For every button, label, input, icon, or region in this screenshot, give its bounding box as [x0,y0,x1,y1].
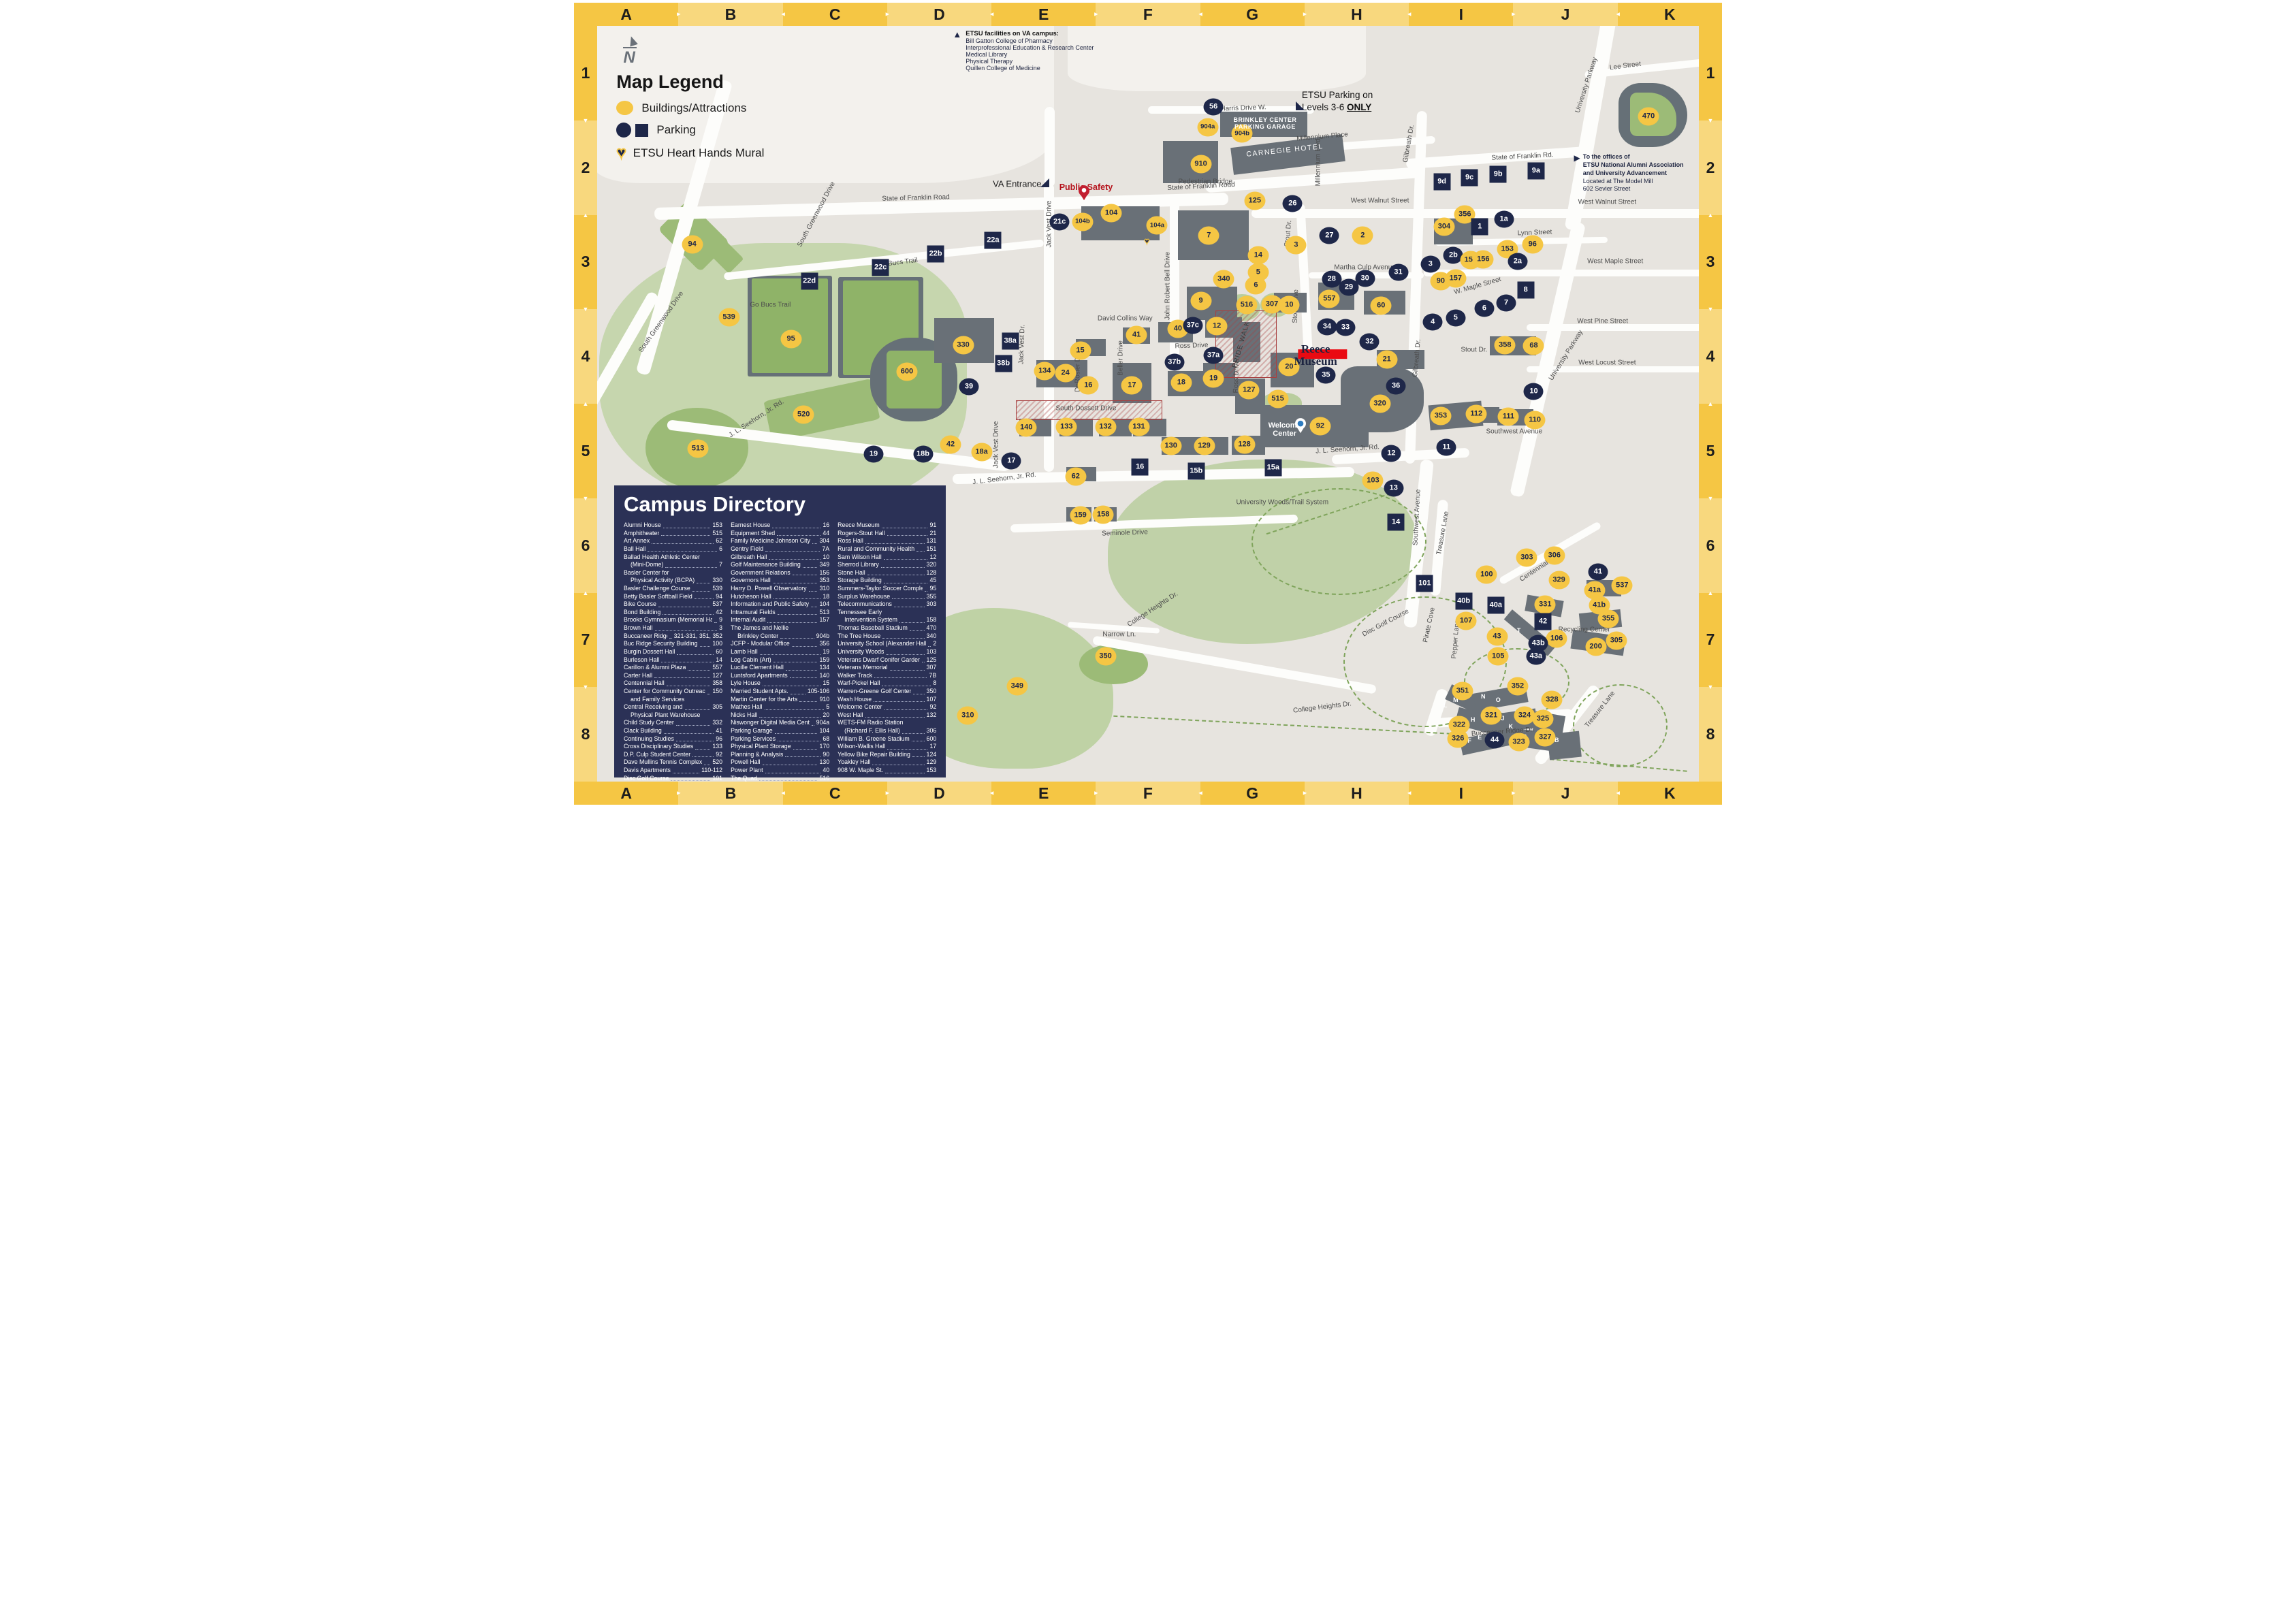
directory-entry-number: 134 [819,664,829,672]
dotted-leader [695,598,714,599]
parking-marker-37c: 37c [1183,317,1202,334]
grid-label-1: 1▼ [574,26,597,121]
directory-entry: Lyle House15 [731,679,829,688]
alumni-note-bold: ETSU National Alumni Association [1583,161,1684,170]
directory-entry: Telecommunications303 [838,600,936,609]
directory-entry-name: Physical Plant Storage [731,743,791,751]
directory-entry: Ross Hall131 [838,537,936,545]
directory-entry-number: 310 [819,585,829,593]
parking-marker-22c: 22c [872,259,889,276]
directory-entry-number: 520 [712,758,722,767]
directory-entry-name: Internal Audit [731,616,765,624]
legend-item-parking: Parking [616,123,764,138]
grid-arrow-icon: ▼ [583,118,589,124]
grid-label-2: 2▲ [1699,121,1722,215]
legend-label: Parking [656,123,696,137]
dotted-leader [910,630,925,631]
alumni-note-bold: and University Advancement [1583,170,1684,178]
directory-entry: Stone Hall128 [838,569,936,577]
directory-entry-name: Reece Museum [838,522,880,530]
directory-entry-number: 15 [823,679,829,688]
dotted-leader [695,749,710,750]
building-marker-103: 103 [1362,472,1384,490]
directory-entry: Yellow Bike Repair Building124 [838,751,936,759]
directory-entry: Physical Plant Storage170 [731,743,829,751]
building-marker-icon [616,101,633,115]
directory-entry-number: 124 [927,751,937,759]
dotted-leader [707,694,710,694]
va-facilities-note: ▲ ETSU facilities on VA campus: Bill Gat… [953,30,1094,71]
legend-title: Map Legend [616,71,764,93]
directory-entry-number: 153 [927,767,937,775]
directory-entry-name: Rogers-Stout Hall [838,530,884,538]
building-marker-325: 325 [1532,709,1553,728]
building-marker-516: 516 [1236,296,1257,315]
directory-entry-name: 908 W. Maple St. [838,767,883,775]
building-marker-158: 158 [1093,505,1114,524]
directory-entry: University School (Alexander Hall)2 [838,640,936,648]
directory-entry-number: 150 [712,688,722,696]
building-marker-350: 350 [1095,647,1116,666]
dotted-leader [916,551,924,552]
directory-entry: The James and Nellie [731,624,829,632]
directory-entry-number: 131 [927,537,937,545]
directory-entry: Buccaneer Ridge321-331, 351, 352 [624,632,722,641]
dotted-leader [886,654,924,655]
building-marker-7: 7 [1198,226,1219,244]
building-marker-329: 329 [1548,571,1569,590]
grid-label-8: 8 [1699,687,1722,782]
parking-marker-15a: 15a [1264,460,1281,477]
building-marker-157: 157 [1445,270,1466,288]
building-letter: O [1496,696,1501,703]
building-marker-24: 24 [1055,364,1076,383]
directory-entry: Surplus Warehouse355 [838,593,936,601]
directory-entry: Earnest House16 [731,522,829,530]
directory-entry-number: 92 [716,751,722,759]
directory-entry-number: 170 [819,743,829,751]
building-marker-305: 305 [1606,631,1627,649]
dotted-leader [812,543,818,544]
parking-marker-35: 35 [1316,366,1336,383]
dotted-leader [775,733,818,734]
directory-entry: Luntsford Apartments140 [731,672,829,680]
directory-entry: Niswonger Digital Media Center904a [731,719,829,727]
directory-entry-number: 153 [712,522,722,530]
directory-entry-number: 45 [929,577,936,585]
building-marker-328: 328 [1542,690,1563,709]
directory-entry-number: 2 [933,640,936,648]
directory-entry-name: Storage Building [838,577,882,585]
directory-entry-name: Physical Activity (BCPA) [631,577,695,585]
building-marker-19: 19 [1203,370,1224,388]
building-marker-200: 200 [1585,637,1606,656]
directory-entry-number: 103 [927,648,937,656]
directory-entry-number: 356 [819,640,829,648]
building-marker-125: 125 [1244,191,1265,210]
grid-label-7: 7▼ [1699,593,1722,688]
va-entrance-label: VA Entrance [993,179,1041,189]
building-marker-324: 324 [1514,707,1535,725]
grid-label-C: C► [783,782,887,805]
directory-entry-name: D.P. Culp Student Center [624,751,690,759]
directory-entry-name: William B. Greene Stadium [838,735,910,743]
building-marker-3: 3 [1286,236,1307,254]
directory-entry-name: Nicks Hall [731,711,757,720]
grid-arrow-icon: ◄ [780,790,786,797]
parking-marker-14: 14 [1388,514,1405,531]
compass-north: N [623,36,637,67]
directory-entry-number: 16 [823,522,829,530]
grid-arrow-icon: ◄ [1406,790,1412,797]
directory-entry: Gentry Field7A [731,545,829,554]
directory-entry-name: Wash House [838,696,872,704]
dotted-leader [925,591,927,592]
street-label: Narrow Ln. [1102,631,1136,639]
map-legend: Map Legend Buildings/Attractions Parking… [616,71,764,169]
directory-entry-name: Log Cabin (Art) [731,656,771,664]
dotted-leader [792,646,818,647]
grid-arrow-icon: ► [1302,790,1308,797]
directory-entry-name: Warren-Greene Golf Center [838,688,911,696]
directory-entry-name: Continuing Studies [624,735,674,743]
building-marker-306: 306 [1544,546,1565,564]
building-marker-104a: 104a [1147,216,1168,235]
grid-label-E: E► [991,3,1096,26]
directory-entry: Ball Hall6 [624,545,722,554]
va-note-line: Bill Gatton College of Pharmacy [966,37,1094,44]
directory-entry: Yoakley Hall129 [838,758,936,767]
directory-entry: Warren-Greene Golf Center350 [838,688,936,696]
building-marker-68: 68 [1523,337,1544,355]
dotted-leader [793,749,818,750]
directory-entry-name: Governors Hall [731,577,771,585]
dotted-leader [763,765,818,765]
dotted-leader [874,701,924,702]
directory-entry-name: Luntsford Apartments [731,672,788,680]
directory-entry-number: 156 [819,569,829,577]
va-note-line: Quillen College of Medicine [966,65,1094,71]
grid-arrow-icon: ▼ [583,496,589,502]
directory-entry-name: Summers-Taylor Soccer Complex [838,585,923,593]
grid-label-2: 2▲ [574,121,597,215]
grid-arrow-icon: ► [1302,12,1308,18]
parking-marker-42: 42 [1534,613,1551,630]
road [1527,324,1722,330]
directory-entry-name: Veterans Memorial [838,664,887,672]
directory-entry-name: Bike Course [624,600,656,609]
directory-entry-number: 96 [716,735,722,743]
directory-entry: Lamb Hall19 [731,648,829,656]
directory-entry-name: Information and Public Safety [731,600,809,609]
street-label: West Pine Street [1577,317,1628,325]
dotted-leader [890,670,925,671]
grid-arrow-icon: ► [1510,790,1516,797]
directory-entry-number: 140 [819,672,829,680]
parking-levels-note: ETSU Parking on Levels 3-6 ONLY [1302,89,1373,114]
directory-entry-name: Welcome Center [838,703,882,711]
directory-entry-number: 60 [716,648,722,656]
grid-label-7: 7▼ [574,593,597,688]
directory-entry: Carter Hall127 [624,672,722,680]
road [1045,107,1055,187]
directory-entry-name: The Tree House [838,632,880,641]
directory-entry-number: 7B [929,672,936,680]
dotted-leader [785,756,820,757]
grid-arrow-icon: ◄ [1615,12,1621,18]
directory-entry-number: 19 [823,648,829,656]
building-marker-131: 131 [1128,418,1149,436]
street-label: College Heights Dr. [1293,701,1352,715]
building-marker-600: 600 [896,362,917,381]
building-marker-17: 17 [1121,376,1143,394]
directory-entry-name: Power Plant [731,767,763,775]
building-marker-60: 60 [1371,297,1392,315]
directory-entry-name: Ross Hall [838,537,863,545]
directory-entry: Brinkley Center904b [731,632,829,641]
directory-entry: WETS-FM Radio Station [838,719,936,727]
directory-entry-name: Child Study Center [624,719,674,727]
dotted-leader [778,741,820,741]
public-safety-pin-icon [1079,185,1089,204]
grid-arrow-icon: ▲ [1708,590,1714,596]
directory-entry: Lucille Clement Hall134 [731,664,829,672]
directory-entry-number: 20 [823,711,829,720]
legend-label: Buildings/Attractions [641,101,746,115]
directory-entry-name: Davis Apartments [624,767,671,775]
directory-entry: Government Relations156 [731,569,829,577]
parking-marker-26: 26 [1283,195,1303,212]
directory-entry-name: West Hall [838,711,863,720]
directory-entry: Rural and Community Health151 [838,545,936,554]
parking-marker-34: 34 [1318,318,1337,335]
grid-arrow-icon: ◄ [989,790,995,797]
directory-entry-name: Bond Building [624,609,660,617]
parking-marker-43a: 43a [1526,648,1546,665]
map-area [752,278,827,373]
street-label: University Woods/Trail System [1236,498,1328,506]
grid-label-F: F◄ [1096,3,1200,26]
street-label: South Dossett Drive [1055,405,1116,413]
alumni-note-line: Located at The Model Mill [1583,178,1684,186]
dotted-leader [765,551,820,552]
dotted-leader [882,638,924,639]
directory-entry-number: 17 [929,743,936,751]
dotted-leader [894,607,925,607]
directory-entry-number: 40 [823,767,829,775]
directory-entry: Basler Center for [624,569,722,577]
directory-entry-name: Veterans Dwarf Conifer Gardens [838,656,919,664]
directory-entry-number: 132 [927,711,937,720]
building-marker-133: 133 [1056,418,1077,436]
triangle-icon: ▶ [1574,153,1580,193]
directory-entry-number: 330 [712,577,722,585]
parking-marker-17: 17 [1002,452,1021,469]
directory-entry-name: Thomas Baseball Stadium [838,624,908,632]
parking-marker-8: 8 [1517,281,1534,298]
directory-entry-number: 537 [712,600,722,609]
building-letter: K [1509,723,1514,730]
directory-entry: Burgin Dossett Hall60 [624,648,722,656]
grid-label-H: H◄ [1305,3,1409,26]
building-marker-12: 12 [1207,317,1228,335]
directory-entry: Carillon & Alumni Plaza557 [624,664,722,672]
building-letter: H [1471,716,1476,723]
directory-entry-number: 90 [823,751,829,759]
parking-marker-16: 16 [1132,459,1149,476]
building-marker-111: 111 [1498,407,1519,426]
dotted-leader [884,583,928,583]
dotted-leader [669,638,672,639]
directory-entry-number: 107 [927,696,937,704]
directory-entry-number: 600 [927,735,937,743]
parking-marker-56: 56 [1204,99,1224,116]
building-marker-96: 96 [1522,235,1543,253]
directory-entry-number: 92 [929,703,936,711]
directory-entry: Planning & Analysis90 [731,751,829,759]
building-marker-42: 42 [940,436,961,454]
building-marker-358: 358 [1495,336,1516,355]
dotted-leader [885,773,924,773]
parking-marker-18b: 18b [913,446,933,463]
street-label: Pedestrian Bridge [1179,178,1233,185]
directory-entry: The Tree House340 [838,632,936,641]
dotted-leader [677,654,714,655]
grid-arrow-icon: ▲ [583,212,589,219]
dotted-leader [774,662,818,662]
dotted-leader [867,575,925,575]
directory-entry: Davis Apartments110-112 [624,767,722,775]
directory-entry: Child Study Center332 [624,719,722,727]
directory-entry-number: 557 [712,664,722,672]
dotted-leader [803,567,818,568]
grid-label-B: B◄ [678,3,782,26]
directory-entry-number: 151 [927,545,937,554]
building-marker-100: 100 [1476,565,1497,583]
directory-entry-number: 128 [927,569,937,577]
directory-entry-name: Carter Hall [624,672,652,680]
street-label: Ross Drive [1175,342,1208,351]
dotted-leader [778,614,818,615]
dotted-leader [704,765,710,765]
street-label: Beller Drive [1117,340,1124,376]
directory-entry: Cross Disciplinary Studies133 [624,743,722,751]
parking-marker-1: 1 [1471,218,1488,235]
grid-arrow-icon: ► [884,12,891,18]
directory-entry-name: Brinkley Center [737,632,778,641]
directory-entry: Married Student Apts.105-106 [731,688,829,696]
grid-label-I: I► [1409,3,1513,26]
dotted-leader [667,686,711,686]
building-marker-352: 352 [1507,677,1528,695]
parking-marker-9d: 9d [1433,173,1450,190]
directory-entry: Center for Community Outreach150 [624,688,722,696]
compass-n-label: N [623,47,637,67]
directory-entry-name: (Mini-Dome) [631,561,663,569]
directory-entry-name: Telecommunications [838,600,892,609]
directory-entry: Internal Audit157 [731,616,829,624]
directory-entry-number: 157 [819,616,829,624]
directory-entry-name: Burleson Hall [624,656,659,664]
directory-entry-name: Lamb Hall [731,648,758,656]
building-marker-351: 351 [1452,681,1473,700]
campus-directory: Campus Directory Alumni House153Amphithe… [614,485,946,777]
parking-note-line2: Levels 3-6 [1302,102,1347,112]
directory-entry-name: Betty Basler Softball Field [624,593,692,601]
directory-entry-number: 159 [819,656,829,664]
directory-entry: Sherrod Library320 [838,561,936,569]
directory-entry-name: Hutcheson Hall [731,593,771,601]
grid-label-E: E► [991,782,1096,805]
directory-entry-name: Harry D. Powell Observatory [731,585,806,593]
directory-entry-number: 349 [819,561,829,569]
directory-entry: Martin Center for the Arts910 [731,696,829,704]
dotted-leader [811,607,817,607]
alumni-note-bold: To the offices of [1583,153,1684,161]
parking-marker-7: 7 [1497,294,1516,311]
directory-entry: Art Annex62 [624,537,722,545]
directory-entry-name: Martin Center for the Arts [731,696,797,704]
building-marker-41: 41 [1126,325,1147,344]
building-marker-303: 303 [1516,549,1537,567]
parking-marker-30: 30 [1355,270,1375,287]
grid-arrow-icon: ► [675,12,682,18]
directory-entry: Alumni House153 [624,522,722,530]
directory-entry: and Family Services [624,696,722,704]
dotted-leader [884,709,928,710]
directory-entry-number: 130 [819,758,829,767]
directory-entry: Gilbreath Hall10 [731,554,829,562]
grid-label-G: G► [1200,3,1305,26]
grid-label-3: 3▼ [1699,215,1722,310]
parking-note-line1: ETSU Parking on [1302,89,1373,101]
dotted-leader [760,654,821,655]
street-label: West Maple Street [1587,258,1643,266]
dotted-leader [912,741,925,741]
building-marker-2: 2 [1352,226,1373,244]
dotted-leader [663,614,714,615]
directory-entry: (Mini-Dome)7 [624,561,722,569]
directory-entry-number: 14 [716,656,722,664]
directory-entry-number: 904a [816,719,830,727]
legend-item-buildings: Buildings/Attractions [616,101,764,115]
dotted-leader [767,622,817,623]
building-letter: L [1444,702,1448,709]
directory-entry: Nicks Hall20 [731,711,829,720]
directory-entry-name: Government Relations [731,569,791,577]
directory-entry-name: Art Annex [624,537,650,545]
directory-entry-number: 321-331, 351, 352 [674,632,722,641]
directory-entry-name: Parking Services [731,735,776,743]
building-marker-15: 15 [1070,342,1091,360]
directory-entry-number: 5 [826,703,829,711]
directory-entry-name: Brooks Gymnasium (Memorial Hall) [624,616,712,624]
directory-entry-number: 515 [712,530,722,538]
grid-arrow-icon: ▼ [1708,118,1714,124]
dotted-leader [865,717,925,718]
alumni-note-line: 602 Sevier Street [1583,185,1684,193]
building-marker-470: 470 [1638,108,1659,126]
building-marker-10: 10 [1279,296,1300,315]
directory-entry: Dave Mullins Tennis Complex520 [624,758,722,767]
dotted-leader [887,535,928,536]
directory-entry-number: 332 [712,719,722,727]
building-marker-520: 520 [793,406,814,424]
grid-label-B: B◄ [678,782,782,805]
grid-border-right: 1▼2▲3▼4▲5▼6▲7▼8 [1699,26,1722,782]
directory-entry-name: Sherrod Library [838,561,879,569]
directory-entry-name: Ballad Health Athletic Center [624,554,700,562]
